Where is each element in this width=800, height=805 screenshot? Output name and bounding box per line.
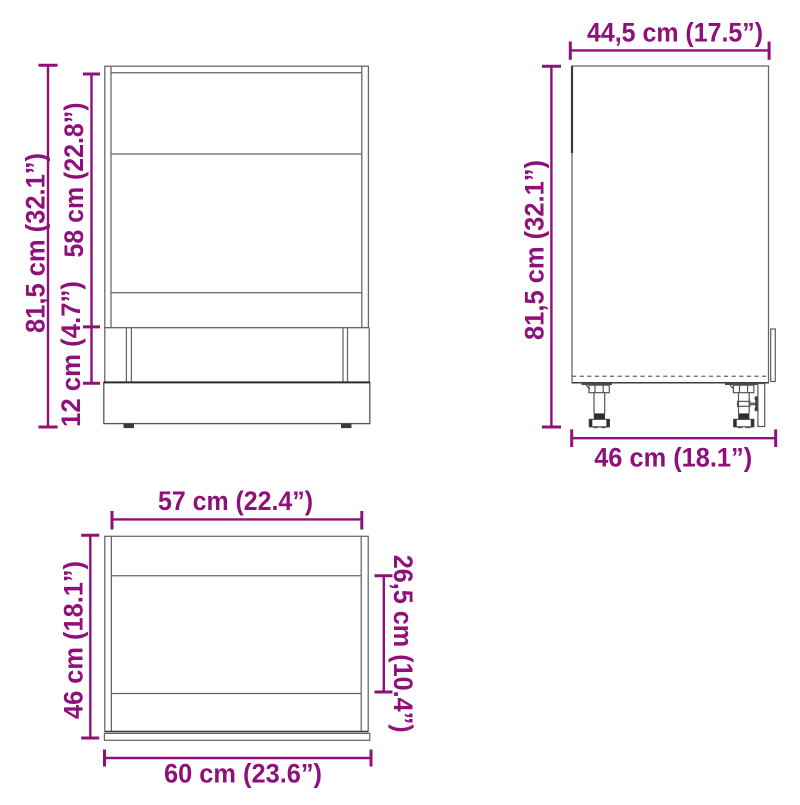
svg-text:46 cm (18.1”): 46 cm (18.1”) [594, 443, 752, 473]
svg-text:58 cm (22.8”): 58 cm (22.8”) [59, 103, 89, 258]
svg-text:60 cm (23.6”): 60 cm (23.6”) [164, 759, 322, 789]
svg-text:81,5 cm (32.1”): 81,5 cm (32.1”) [520, 160, 550, 340]
svg-text:57 cm (22.4”): 57 cm (22.4”) [158, 486, 313, 516]
svg-text:26,5 cm (10.4”): 26,5 cm (10.4”) [388, 555, 418, 733]
svg-text:12 cm (4.7”): 12 cm (4.7”) [56, 281, 86, 427]
svg-text:44,5 cm (17.5”): 44,5 cm (17.5”) [587, 17, 763, 47]
svg-text:81,5 cm (32.1”): 81,5 cm (32.1”) [20, 153, 50, 333]
svg-text:46 cm (18.1”): 46 cm (18.1”) [58, 561, 88, 719]
